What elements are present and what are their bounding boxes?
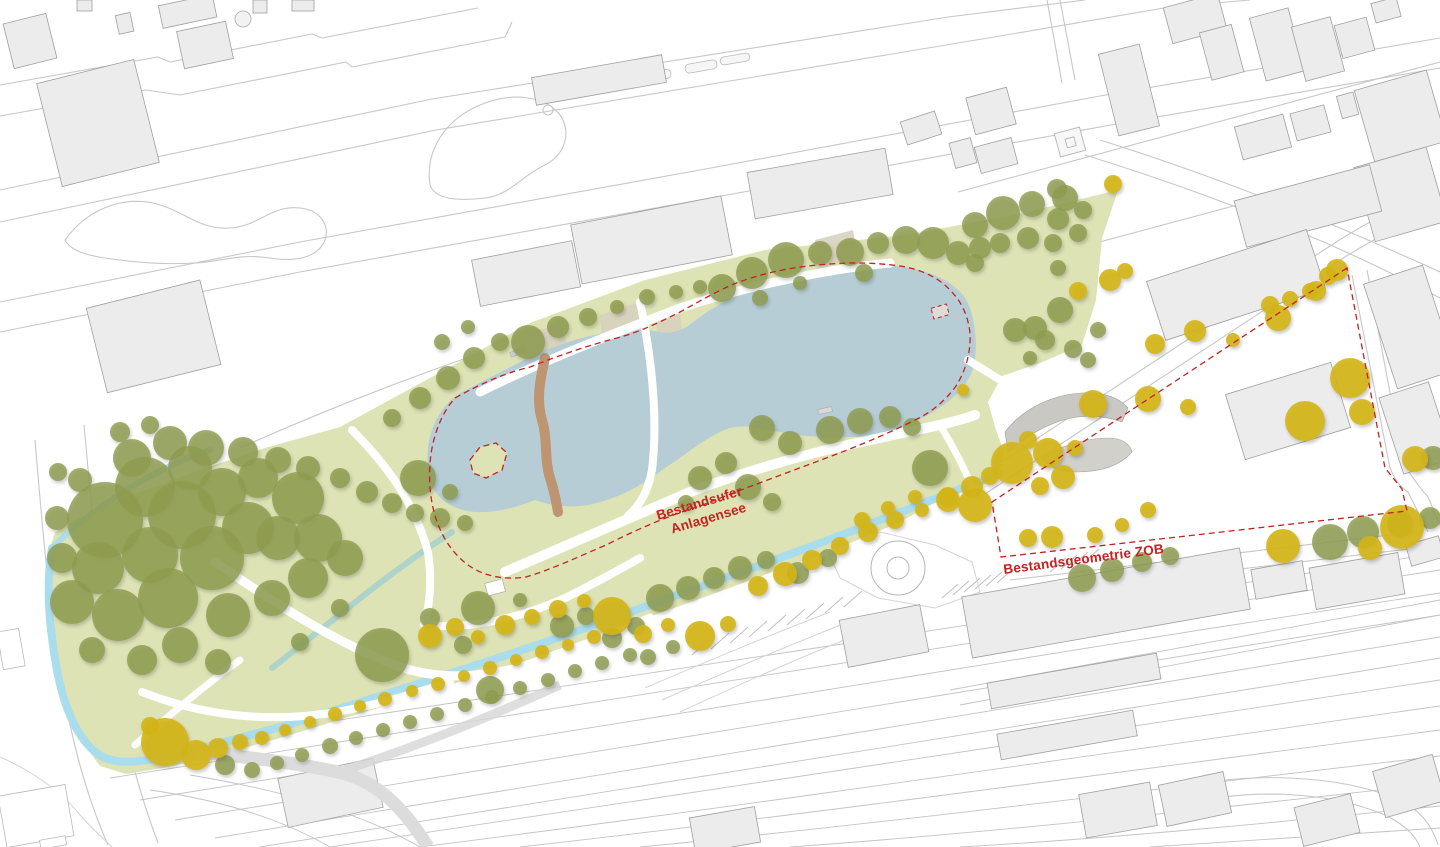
tree-yellow [1117, 263, 1133, 279]
tree-yellow [1033, 438, 1063, 468]
tree-yellow [510, 654, 522, 666]
tree-olive [244, 762, 260, 778]
tree-olive [867, 232, 889, 254]
tree-olive [547, 316, 569, 338]
tree-olive [1080, 352, 1096, 368]
tree-olive [188, 430, 224, 466]
tree-olive [49, 463, 67, 481]
round-structure [235, 11, 251, 27]
tree-olive [127, 645, 157, 675]
tree-yellow [1349, 399, 1375, 425]
tree-yellow [802, 550, 822, 570]
tree-olive [463, 347, 485, 369]
tree-yellow [1051, 465, 1075, 489]
tree-yellow [1285, 401, 1325, 441]
tree-yellow [1079, 390, 1107, 418]
tree-olive [47, 543, 77, 573]
tree-olive [1074, 201, 1092, 219]
tree-yellow [1266, 529, 1300, 563]
tree-olive [986, 196, 1020, 230]
tree-olive [1047, 208, 1069, 230]
tree-olive [355, 628, 409, 682]
tree-yellow [1330, 358, 1370, 398]
tree-olive [322, 738, 338, 754]
tree-yellow [957, 384, 969, 396]
tree-olive [990, 233, 1010, 253]
tree-yellow [1180, 399, 1196, 415]
tree-olive [903, 418, 921, 436]
tree-olive [646, 584, 674, 612]
tree-olive [68, 468, 92, 492]
tree-yellow [1145, 334, 1165, 354]
tree-yellow [1031, 477, 1049, 495]
tree-olive [763, 493, 781, 511]
tree-yellow [141, 717, 159, 735]
tree-olive [1068, 564, 1096, 592]
tree-yellow [1261, 296, 1279, 314]
tree-olive [1019, 191, 1045, 217]
tree-olive [376, 723, 390, 737]
tree-olive [1035, 330, 1055, 350]
tree-olive [1044, 234, 1062, 252]
tree-olive [331, 599, 349, 617]
tree-olive [295, 748, 309, 762]
tree-olive [1050, 260, 1066, 276]
tree-yellow [1104, 175, 1122, 193]
tree-yellow [1069, 282, 1087, 300]
tree-olive [808, 241, 832, 265]
tree-yellow [1067, 440, 1083, 456]
tree-yellow [458, 670, 470, 682]
tree-yellow [587, 630, 601, 644]
tree-yellow [661, 618, 675, 632]
tree-olive [434, 334, 450, 350]
tree-olive [1003, 318, 1027, 342]
tree-olive [141, 416, 159, 434]
tree-yellow [549, 600, 567, 618]
tree-olive [430, 508, 450, 528]
tree-yellow [915, 503, 929, 517]
tree-olive [778, 431, 802, 455]
tree-yellow [255, 731, 269, 745]
tree-olive [693, 280, 707, 294]
tree-yellow [483, 661, 497, 675]
tree-yellow [1358, 536, 1382, 560]
tree-yellow [471, 630, 485, 644]
tree-olive [406, 504, 424, 522]
tree-yellow [1402, 446, 1428, 472]
tree-yellow [354, 700, 366, 712]
tree-olive [349, 731, 363, 745]
tree-yellow [562, 639, 574, 651]
tree-olive [491, 333, 509, 351]
tree-yellow [1115, 518, 1129, 532]
tree-olive [288, 558, 328, 598]
tree-olive [110, 422, 130, 442]
tree-olive [962, 212, 988, 238]
tree-olive [757, 551, 775, 569]
tree-olive [1064, 340, 1082, 358]
tree-olive [793, 276, 807, 290]
tree-olive [669, 285, 683, 299]
tree-yellow [1019, 431, 1037, 449]
tree-yellow [685, 621, 715, 651]
tree-yellow [378, 692, 392, 706]
tree-yellow [232, 734, 248, 750]
tree-yellow [958, 488, 992, 522]
tree-olive [205, 649, 231, 675]
tree-olive [45, 506, 69, 530]
tree-olive [1047, 297, 1073, 323]
tree-olive [550, 614, 574, 638]
tree-olive [610, 300, 624, 314]
tree-olive [1312, 524, 1348, 560]
tree-olive [383, 409, 401, 427]
forecourt-circle [871, 541, 925, 595]
tree-olive [816, 416, 844, 444]
tree-olive [1069, 224, 1087, 242]
tree-olive [461, 591, 495, 625]
tree-olive [296, 456, 320, 480]
tree-olive [966, 254, 984, 272]
tree-olive [461, 320, 475, 334]
tree-olive [577, 607, 595, 625]
tree-olive [457, 515, 473, 531]
tree-yellow [908, 490, 922, 504]
tree-olive [623, 648, 637, 662]
tree-yellow [938, 487, 958, 507]
tree-olive [291, 633, 309, 651]
tree-olive [330, 468, 350, 488]
tree-olive [356, 481, 378, 503]
tree-olive [879, 406, 901, 428]
tree-olive [511, 325, 545, 359]
tree-yellow [593, 597, 631, 635]
tree-olive [579, 308, 597, 326]
plaza-square [1054, 127, 1085, 157]
tree-yellow [720, 616, 736, 632]
tree-olive [454, 636, 472, 654]
tree-olive [382, 493, 402, 513]
tree-yellow [431, 677, 445, 691]
tree-yellow [748, 576, 768, 596]
tree-olive [917, 227, 949, 259]
tree-olive [595, 656, 609, 670]
tree-yellow [495, 615, 515, 635]
tree-olive [327, 540, 363, 576]
tree-olive [403, 715, 417, 729]
tree-olive [92, 589, 144, 641]
site-plan: Bestandsufer Anlagensee Bestandsgeometri… [0, 0, 1440, 847]
tree-olive [640, 649, 656, 665]
tree-olive [736, 257, 768, 289]
tree-yellow [1184, 320, 1206, 342]
tree-olive [639, 289, 655, 305]
tree-olive [409, 387, 431, 409]
tree-olive [836, 238, 864, 266]
tree-yellow [854, 512, 870, 528]
tree-yellow [1140, 502, 1156, 518]
tree-yellow [304, 716, 316, 728]
tree-olive [855, 264, 873, 282]
tree-olive [749, 415, 775, 441]
tree-olive [265, 447, 291, 473]
tree-olive [1047, 179, 1067, 199]
tree-olive [270, 756, 284, 770]
tree-olive [442, 484, 458, 500]
tree-olive [430, 707, 444, 721]
tree-yellow [406, 685, 418, 697]
site-plan-canvas: Bestandsufer Anlagensee Bestandsgeometri… [0, 0, 1440, 847]
tree-olive [228, 437, 258, 467]
tree-olive [153, 426, 187, 460]
tree-yellow [577, 594, 591, 608]
tree-olive [458, 698, 472, 712]
tree-olive [715, 452, 737, 474]
tree-yellow [1019, 529, 1037, 547]
tree-olive [752, 290, 768, 306]
tree-olive [436, 366, 460, 390]
tree-yellow [634, 625, 652, 643]
tree-yellow [535, 645, 549, 659]
tree-olive [206, 593, 250, 637]
tree-olive [1090, 322, 1106, 338]
tree-yellow [1282, 291, 1298, 307]
tree-yellow [279, 724, 291, 736]
tree-yellow [524, 609, 540, 625]
tree-yellow [181, 740, 211, 770]
tree-olive [676, 576, 700, 600]
tree-olive [847, 408, 873, 434]
tree-yellow [418, 624, 442, 648]
tree-olive [50, 580, 94, 624]
tree-olive [541, 673, 555, 687]
tree-yellow [831, 537, 849, 555]
tree-olive [113, 439, 151, 477]
tree-olive [892, 226, 920, 254]
tree-olive [513, 593, 527, 607]
tree-olive [256, 516, 300, 560]
tree-olive [703, 567, 725, 589]
tree-olive [568, 664, 582, 678]
tree-yellow [328, 707, 342, 721]
tree-olive [666, 640, 680, 654]
parking-hatch-west [692, 591, 862, 655]
tree-yellow [1135, 386, 1161, 412]
tree-yellow [208, 738, 228, 758]
tree-yellow [1041, 526, 1063, 548]
tree-yellow [446, 618, 464, 636]
tree-olive [708, 274, 736, 302]
tree-olive [485, 690, 499, 704]
tree-olive [79, 637, 105, 663]
tree-yellow [1087, 527, 1103, 543]
tree-olive [912, 450, 948, 486]
tree-yellow [881, 501, 895, 515]
tree-olive [513, 681, 527, 695]
tree-olive [162, 627, 198, 663]
tree-olive [728, 556, 752, 580]
tree-yellow [773, 562, 797, 586]
tree-olive [254, 580, 290, 616]
tree-olive [1023, 351, 1037, 365]
tree-olive [688, 466, 712, 490]
tree-olive [1017, 227, 1039, 249]
